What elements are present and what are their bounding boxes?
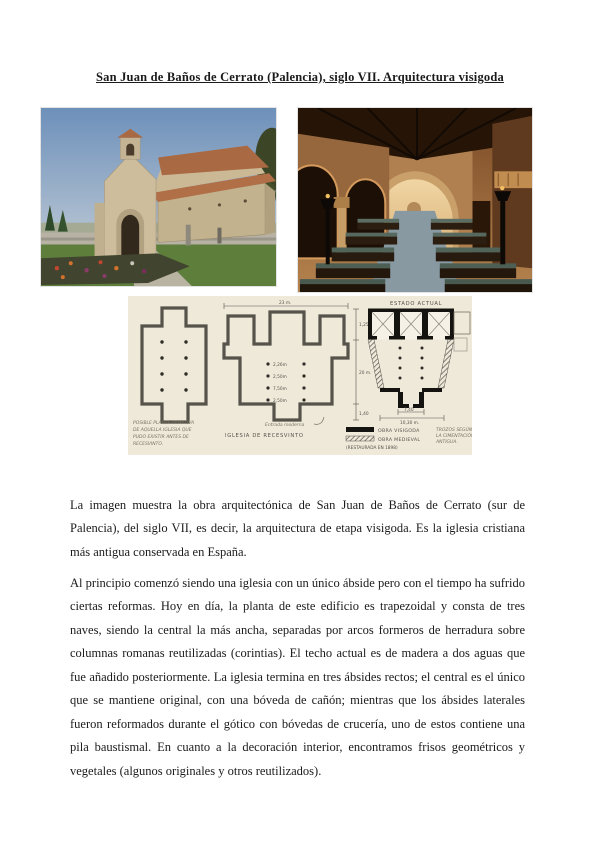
dim-portico-depth: 1,40 [359,411,369,417]
paragraph-description: Al principio comenzó siendo una iglesia … [70,572,525,784]
dim-aisle-2: 2,50m [273,374,287,380]
dim-aisle-1: 2,26m [273,362,287,368]
legend-medieval-label: OBRA MEDIEVAL [378,437,420,443]
plan-recesvinto-caption: IGLESIA DE RECESVINTO [225,433,304,439]
plan-primitive-caption-line4: RECESVINTO. [133,441,163,447]
dim-top-width: 23 m. [279,300,291,306]
legend-side-note-line1: TROZOS SEGÚN [436,426,472,433]
floor-plans-drawing: POSIBLE PLANTA PRIMITIVA DE AQUELLA IGLE… [128,296,472,455]
floor-plans-figure: POSIBLE PLANTA PRIMITIVA DE AQUELLA IGLE… [128,296,472,455]
document-page: San Juan de Baños de Cerrato (Palencia),… [0,0,600,848]
church-exterior-illustration [41,108,276,286]
dim-portico-width: 7,40 [404,407,414,413]
dim-side-length: 20 m. [359,370,371,376]
church-exterior-photo [40,107,277,287]
dim-chapel-depth: 1,25 [359,322,369,328]
legend-side-note-line3: ANTIGUA. [435,439,458,445]
church-interior-illustration [298,108,532,292]
dim-aisle-4: 2,50m [273,398,287,404]
paragraph-intro: La imagen muestra la obra arquitectónica… [70,494,525,565]
entrance-note: Entrada moderna [265,422,305,428]
dim-aisle-3: 7,50m [273,386,287,392]
church-interior-photo [297,107,533,293]
plan-primitive-caption-line3: PUDO EXISTIR ANTES DE [133,434,189,440]
legend-side-note-line2: LA CIMENTACIÓN [436,432,472,439]
plan-primitive-caption-line1: POSIBLE PLANTA PRIMITIVA [133,420,194,426]
dim-west-width: 10,30 m. [400,420,419,426]
legend-restored-note: (RESTAURADA EN 1898) [346,445,398,451]
page-title: San Juan de Baños de Cerrato (Palencia),… [0,70,600,85]
plan-primitive-caption-line2: DE AQUELLA IGLESIA QUE [133,427,192,433]
legend-visigoda-label: OBRA VISIGODA [378,428,420,434]
plan-estado-actual-title: ESTADO ACTUAL [390,301,442,307]
